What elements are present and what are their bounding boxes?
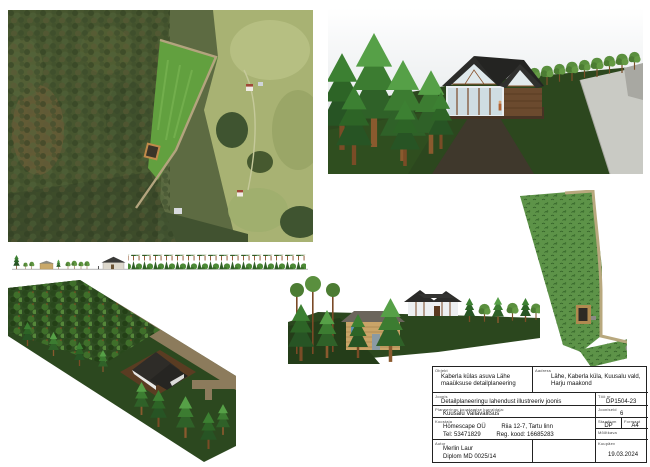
organizer-value: Kuusalu Vallavalitsus [443,411,499,418]
title-block-format-cell: Formaat A4 [622,418,648,429]
date-value: 19.03.2024 [608,452,638,459]
company-name: Homescape OÜ [443,424,486,430]
address-label: Aadress [535,368,551,373]
title-block-author-cell: Autor Merlin Laur Diplom MD 0025/14 [433,440,533,463]
street-main-house [404,290,462,316]
elevation-strip [10,246,310,272]
title-block-date-cell: Kuupäev 19.03.2024 [596,440,648,463]
company-phone: Tel: 53471829 [443,432,481,438]
title-block-scale-cell: Mõõtkava [596,429,648,440]
elevation-figure [98,266,99,269]
title-block-workno-cell: Töö nr DP1504-23 [596,393,648,406]
work-no-value: DP1504-23 [606,399,636,406]
title-block-sheets-cell: Jooniseid 6 [596,406,648,418]
sheets-value: 6 [620,411,623,418]
company-address: Riia 12-7, Tartu linn [501,424,553,430]
drawing-value: Detailplaneeringu lahendust illustreeriv… [441,399,561,406]
company-reg: Reg. kood: 16685283 [496,432,553,438]
person-figure [499,101,502,111]
render-house-perspective [328,8,643,174]
author-name: Merlin Laur [443,446,473,453]
elevation-outbuilding [39,261,54,269]
elevation-house [102,257,126,269]
title-block-company-cell: Koostaja Homescape OÜ Riia 12-7, Tartu l… [433,418,596,440]
elevation-tree-row [128,255,306,269]
aerial-photo-panel [8,10,313,242]
object-label: Objekt [435,368,448,373]
object-value: Kaberla külas asuva Lähe maaüksuse detai… [441,374,530,388]
date-label: Kuupäev [598,441,615,446]
site-plan [505,190,627,372]
title-block-stage-cell: Staadium DP [596,418,622,429]
render-street-view [288,264,540,364]
address-value: Lähe, Kaberla küla, Kuusalu vald, Harju … [551,374,646,388]
siteplan-plot [520,190,627,367]
title-block-organizer-cell: Planeeringu koostamise korraldaja: Kuusa… [433,406,596,418]
render-plot-axonometric [8,278,236,464]
title-block-drawing-cell: Joonis Detailplaneeringu lahendust illus… [433,393,596,406]
scale-label: Mõõtkava [598,430,617,435]
author-cert: Diplom MD 0025/14 [443,454,496,461]
title-block: Objekt Kaberla külas asuva Lähe maaüksus… [432,366,647,463]
title-block-object-cell: Objekt Kaberla külas asuva Lähe maaüksus… [433,367,533,393]
title-block-address-cell: Aadress Lähe, Kaberla küla, Kuusalu vald… [533,367,648,393]
title-block-signature-cell [533,440,596,463]
drawing-sheet: Objekt Kaberla külas asuva Lähe maaüksus… [0,0,650,467]
sheets-label: Jooniseid [598,407,617,412]
